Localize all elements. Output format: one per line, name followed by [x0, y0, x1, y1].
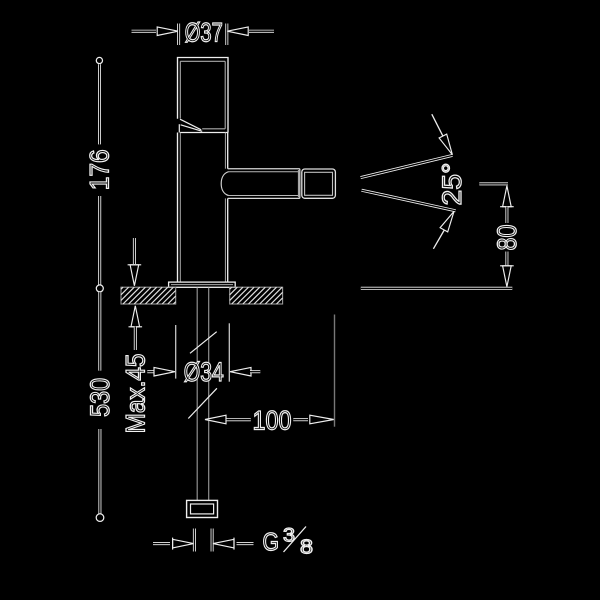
svg-text:3: 3 — [283, 526, 295, 547]
svg-text:176: 176 — [85, 149, 115, 190]
svg-text:Ø34: Ø34 — [184, 357, 224, 387]
svg-text:530: 530 — [85, 378, 115, 417]
svg-text:Max.45: Max.45 — [121, 354, 151, 434]
svg-text:100: 100 — [253, 405, 292, 435]
svg-text:8: 8 — [300, 537, 313, 559]
svg-text:Ø37: Ø37 — [185, 17, 223, 47]
svg-text:G: G — [263, 528, 280, 556]
svg-text:25°: 25° — [437, 163, 467, 206]
svg-text:80: 80 — [492, 225, 522, 251]
